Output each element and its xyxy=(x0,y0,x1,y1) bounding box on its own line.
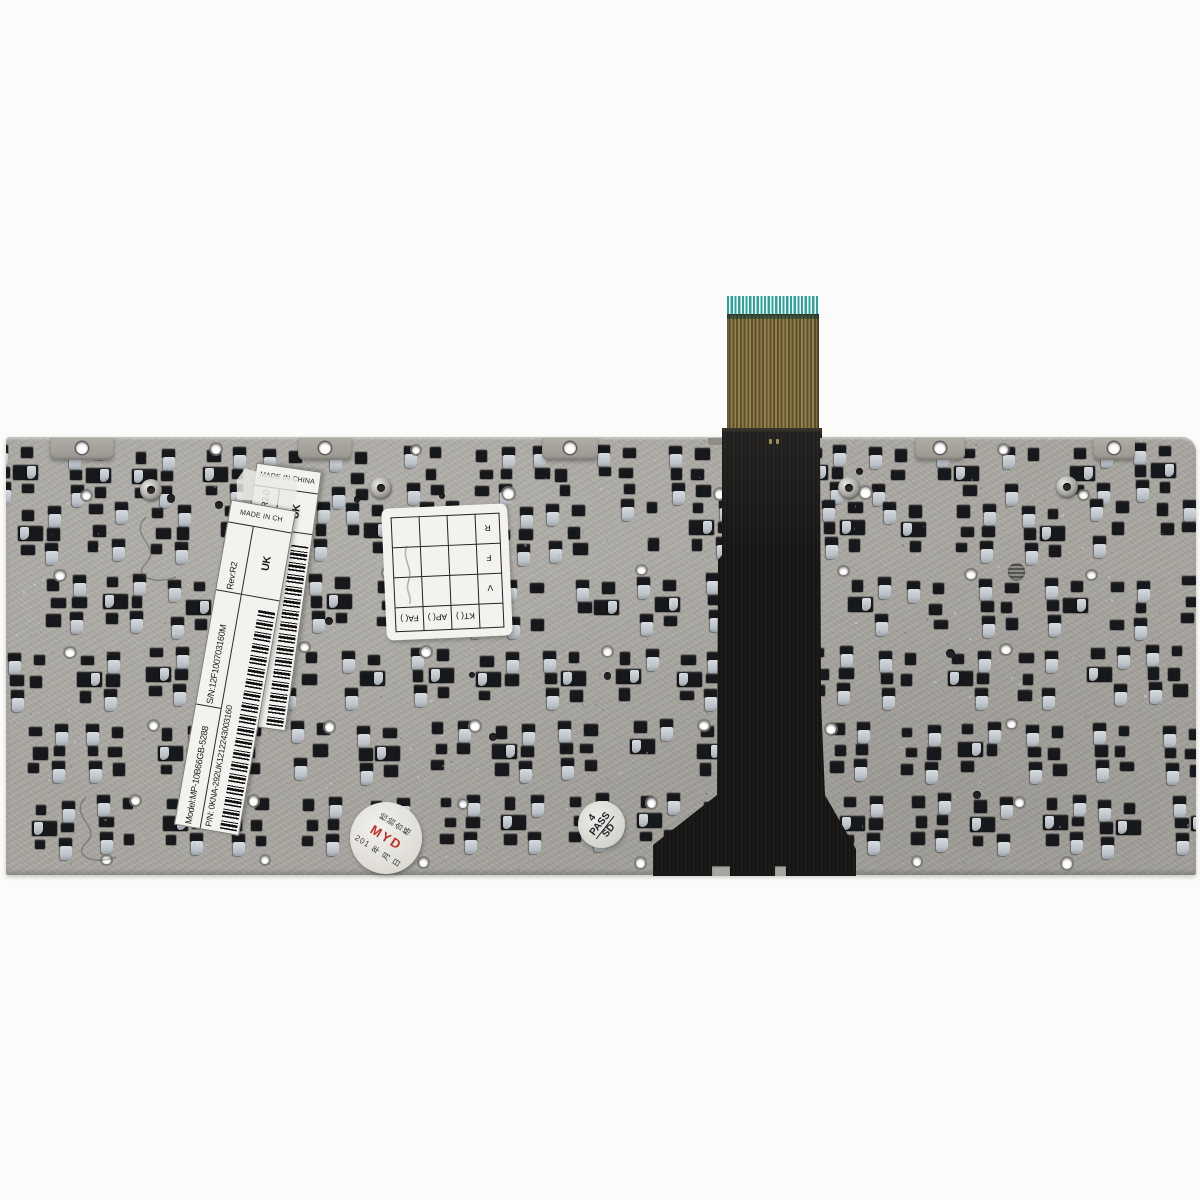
plate-cutout xyxy=(46,614,60,627)
plate-cutout xyxy=(911,832,925,845)
plate-cutout xyxy=(909,505,922,518)
plate-cutout xyxy=(1048,748,1060,761)
metal-speck xyxy=(1139,710,1141,712)
keyhook-clip xyxy=(330,458,342,472)
pin-hole xyxy=(946,649,955,658)
keyhook-clip xyxy=(577,588,589,602)
keyhook-clip xyxy=(108,660,120,674)
plate-cutout xyxy=(457,743,471,754)
plate-cutout xyxy=(1135,465,1146,476)
plate-cutout xyxy=(1175,818,1188,828)
plate-cutout xyxy=(974,800,987,812)
keyhook-clip xyxy=(1115,692,1127,706)
plate-cutout xyxy=(573,543,588,555)
plate-cutout xyxy=(61,823,74,833)
metal-speck xyxy=(508,715,509,717)
keyhook-clip xyxy=(295,766,307,780)
keyhook-clip xyxy=(1138,589,1150,603)
metal-speck xyxy=(969,638,971,640)
qc-cell xyxy=(419,515,448,546)
metal-speck xyxy=(1069,552,1071,553)
plate-cutout xyxy=(156,528,170,539)
through-hole xyxy=(249,796,259,806)
metal-speck xyxy=(1126,466,1127,467)
keyhook-clip xyxy=(313,619,325,633)
plate-cutout xyxy=(1047,600,1059,611)
plate-cutout xyxy=(830,761,845,773)
plate-cutout xyxy=(162,728,172,740)
qc-cell xyxy=(391,516,420,547)
through-hole xyxy=(300,643,308,651)
plate-cutout xyxy=(501,469,512,480)
metal-speck xyxy=(887,522,889,524)
metal-speck xyxy=(486,847,488,849)
plate-cutout xyxy=(895,449,907,461)
metal-speck xyxy=(1011,677,1013,678)
plate-cutout xyxy=(426,469,436,480)
metal-speck xyxy=(878,631,879,633)
metal-speck xyxy=(854,528,855,530)
metal-speck xyxy=(400,737,402,739)
ffc-connector-fingers xyxy=(727,296,819,316)
keyhook-clip xyxy=(929,733,941,747)
plate-cutout xyxy=(648,538,659,551)
metal-speck xyxy=(529,675,531,677)
metal-speck xyxy=(30,635,32,637)
keyhook-clip xyxy=(233,842,245,856)
keyhook-clip xyxy=(1164,734,1176,748)
metal-speck xyxy=(975,486,977,488)
metal-speck xyxy=(445,856,447,858)
plate-cutout xyxy=(476,450,487,462)
through-hole xyxy=(1079,491,1088,500)
metal-speck xyxy=(983,740,985,742)
screw-boss xyxy=(1056,476,1078,498)
metal-speck xyxy=(142,738,144,740)
metal-speck xyxy=(23,591,25,594)
metal-speck xyxy=(450,800,452,802)
metal-speck xyxy=(996,688,998,690)
qc-cell xyxy=(420,545,449,576)
metal-speck xyxy=(369,587,371,589)
plate-cutout xyxy=(335,577,350,590)
through-hole xyxy=(1015,798,1024,807)
keyhook-clip xyxy=(459,729,471,743)
plate-cutout xyxy=(912,796,925,808)
plate-cutout xyxy=(161,765,172,775)
keyhook-clip xyxy=(529,840,541,854)
qc-cell xyxy=(393,576,422,607)
plate-cutout xyxy=(175,669,188,680)
metal-speck xyxy=(57,579,58,581)
keyhook-clip xyxy=(1094,544,1106,558)
plate-cutout xyxy=(1182,576,1196,585)
metal-speck xyxy=(588,638,589,640)
plate-cutout xyxy=(693,503,703,513)
metal-speck xyxy=(474,684,475,686)
plate-cutout xyxy=(35,840,46,849)
metal-speck xyxy=(356,565,357,566)
keyhook-clip xyxy=(641,622,653,636)
metal-speck xyxy=(997,566,999,568)
keyhook-clip xyxy=(1094,731,1106,745)
qc-cell xyxy=(449,574,478,605)
metal-speck xyxy=(904,632,906,634)
slot-clip xyxy=(1045,816,1054,829)
keyhook-clip xyxy=(330,805,342,819)
metal-speck xyxy=(48,723,49,725)
plate-cutout xyxy=(560,485,570,496)
metal-speck xyxy=(1193,822,1195,823)
keyhook-clip xyxy=(547,696,559,710)
metal-speck xyxy=(34,584,35,586)
plate-cutout xyxy=(336,613,348,623)
tab-screw-hole xyxy=(564,442,576,454)
keyhook-clip xyxy=(131,619,143,633)
plate-cutout xyxy=(351,473,364,484)
ribbon-contact-dot xyxy=(776,439,779,444)
plate-cutout xyxy=(623,448,635,457)
metal-speck xyxy=(908,665,909,667)
plate-cutout xyxy=(835,745,846,756)
keyhook-clip xyxy=(63,809,75,823)
keyhook-clip xyxy=(1030,770,1042,784)
plate-cutout xyxy=(901,674,912,685)
plate-cutout xyxy=(30,676,42,688)
plate-cutout xyxy=(47,528,60,540)
metal-speck xyxy=(430,700,433,701)
plate-cutout xyxy=(700,763,711,776)
metal-speck xyxy=(533,862,536,864)
through-hole xyxy=(699,721,709,731)
keyhook-clip xyxy=(981,549,993,563)
metal-speck xyxy=(31,713,32,715)
keyhook-clip xyxy=(884,510,896,524)
metal-speck xyxy=(214,486,216,488)
screw-boss xyxy=(140,479,162,501)
tab-screw-hole xyxy=(319,442,331,454)
metal-speck xyxy=(276,739,278,740)
plate-cutout xyxy=(316,524,326,536)
plate-cutout xyxy=(1159,446,1171,456)
through-hole xyxy=(913,857,921,865)
metal-speck xyxy=(452,725,454,726)
plate-cutout xyxy=(161,471,173,481)
metal-speck xyxy=(388,505,389,506)
plate-cutout xyxy=(929,604,942,615)
keyhook-clip xyxy=(1046,586,1058,600)
metal-speck xyxy=(388,739,390,741)
metal-speck xyxy=(882,475,884,476)
plate-cutout xyxy=(961,527,974,537)
metal-speck xyxy=(1189,825,1190,827)
ribbon-contact-dot xyxy=(769,439,772,444)
metal-speck xyxy=(118,761,120,762)
keyhook-clip xyxy=(1102,845,1114,859)
metal-speck xyxy=(849,443,851,444)
metal-speck xyxy=(86,488,88,490)
plate-cutout xyxy=(89,504,103,514)
plate-cutout xyxy=(1091,648,1105,659)
metal-speck xyxy=(159,456,160,457)
plate-cutout xyxy=(1006,618,1019,630)
plate-cutout xyxy=(570,690,583,703)
metal-speck xyxy=(855,505,856,507)
keyhook-clip xyxy=(670,454,682,468)
qc-cell: F xyxy=(476,543,501,574)
metal-speck xyxy=(70,863,72,864)
keyhook-clip xyxy=(1184,508,1196,522)
metal-speck xyxy=(1021,737,1022,738)
metal-speck xyxy=(516,495,518,496)
plate-cutout xyxy=(1116,501,1129,512)
plate-cutout xyxy=(1168,668,1180,681)
metal-speck xyxy=(1005,528,1007,530)
slot-clip xyxy=(903,523,912,536)
plate-cutout xyxy=(355,452,367,464)
plate-cutout xyxy=(1157,503,1168,516)
plate-cutout xyxy=(1046,834,1060,846)
metal-speck xyxy=(450,828,452,829)
myd-stamp-content: 201 年 月 日 MYD 检验合格 xyxy=(352,806,420,871)
metal-speck xyxy=(467,641,468,644)
slotted-screw xyxy=(1008,563,1025,580)
keyhook-clip xyxy=(465,840,477,854)
plate-cutout xyxy=(934,620,948,629)
metal-speck xyxy=(828,796,830,798)
metal-speck xyxy=(416,454,418,455)
metal-speck xyxy=(126,656,127,658)
plate-cutout xyxy=(1120,762,1134,772)
plate-cutout xyxy=(602,582,615,594)
plate-cutout xyxy=(21,447,33,458)
plate-cutout xyxy=(430,447,441,458)
plate-cutout xyxy=(1172,646,1182,655)
metal-speck xyxy=(335,481,337,483)
metal-speck xyxy=(1159,611,1162,613)
metal-speck xyxy=(450,761,452,763)
metal-speck xyxy=(1029,533,1031,536)
plate-cutout xyxy=(432,722,443,734)
plate-cutout xyxy=(1110,620,1124,630)
metal-speck xyxy=(827,649,829,651)
metal-speck xyxy=(173,632,175,634)
metal-speck xyxy=(1037,700,1039,701)
plate-cutout xyxy=(973,836,983,846)
plate-cutout xyxy=(856,744,868,755)
plate-cutout xyxy=(251,820,262,831)
keyhook-clip xyxy=(1023,514,1035,528)
through-hole xyxy=(149,721,158,730)
keyhook-clip xyxy=(169,588,181,602)
plate-cutout xyxy=(1074,448,1087,459)
metal-speck xyxy=(595,704,598,706)
keyhook-clip xyxy=(559,729,571,743)
through-hole xyxy=(102,856,111,865)
keyhook-clip xyxy=(346,696,358,710)
metal-speck xyxy=(164,639,165,641)
slot-clip xyxy=(205,468,214,481)
metal-speck xyxy=(129,576,131,577)
metal-speck xyxy=(1178,664,1179,665)
metal-speck xyxy=(705,793,707,794)
metal-speck xyxy=(471,648,473,650)
tab-screw-hole xyxy=(76,442,88,454)
plate-cutout xyxy=(1160,482,1170,493)
plate-cutout xyxy=(112,727,123,738)
pin-hole xyxy=(856,468,863,475)
slot-clip xyxy=(478,673,487,686)
plate-cutout xyxy=(647,502,657,513)
metal-speck xyxy=(187,584,189,585)
plate-cutout xyxy=(151,544,162,554)
metal-speck xyxy=(48,779,50,781)
ffc-exposed-traces xyxy=(727,314,819,433)
metal-speck xyxy=(330,783,332,785)
metal-speck xyxy=(659,763,661,764)
keyhook-clip xyxy=(1167,771,1179,785)
plate-cutout xyxy=(113,763,125,776)
plate-cutout xyxy=(95,487,106,499)
metal-speck xyxy=(417,776,419,778)
keyhook-clip xyxy=(518,552,530,566)
keyhook-clip xyxy=(1003,455,1015,469)
metal-speck xyxy=(96,598,97,599)
plate-cutout xyxy=(106,674,120,687)
plate-cutout xyxy=(34,655,46,666)
slot-clip xyxy=(134,470,143,483)
metal-speck xyxy=(650,600,652,602)
plate-cutout xyxy=(495,763,509,776)
through-hole xyxy=(503,488,513,498)
metal-speck xyxy=(166,469,167,471)
metal-speck xyxy=(142,838,144,839)
through-hole xyxy=(839,567,847,575)
slot-clip xyxy=(27,466,36,479)
qc-cell xyxy=(447,514,476,545)
keyhook-clip xyxy=(74,583,86,597)
metal-speck xyxy=(953,796,955,798)
metal-speck xyxy=(80,633,82,635)
keyhook-clip xyxy=(113,547,125,561)
plate-cutout xyxy=(136,452,146,463)
metal-speck xyxy=(619,772,621,773)
metal-speck xyxy=(998,748,1000,750)
keyhook-clip xyxy=(1177,841,1189,855)
keyhook-clip xyxy=(105,697,117,711)
metal-speck xyxy=(959,689,961,691)
metal-speck xyxy=(450,497,453,499)
keyhook-clip xyxy=(347,511,359,525)
metal-speck xyxy=(1111,599,1113,601)
metal-speck xyxy=(890,861,892,862)
myd-date-stamp: 201 年 月 日 MYD 检验合格 xyxy=(350,802,422,874)
metal-speck xyxy=(980,487,983,489)
metal-speck xyxy=(333,835,334,836)
through-hole xyxy=(131,796,140,805)
micro-tab xyxy=(708,438,724,445)
plate-cutout xyxy=(384,765,397,777)
metal-speck xyxy=(1189,685,1191,687)
plate-cutout xyxy=(1115,746,1125,757)
plate-cutout xyxy=(51,598,66,608)
metal-speck xyxy=(98,548,100,549)
through-hole xyxy=(1001,645,1011,655)
metal-speck xyxy=(144,652,145,654)
keyhook-clip xyxy=(705,697,717,711)
plate-cutout xyxy=(1119,726,1130,735)
plate-cutout xyxy=(81,656,93,666)
plate-cutout xyxy=(177,527,189,539)
screw-boss xyxy=(838,477,860,499)
plate-cutout xyxy=(956,543,967,553)
qc-grid-rotated: KT( )AP( )FA( )VFR xyxy=(390,512,504,632)
plate-cutout xyxy=(256,836,267,846)
keyhook-clip xyxy=(343,659,355,673)
plate-cutout xyxy=(383,728,397,738)
metal-speck xyxy=(933,713,936,714)
metal-speck xyxy=(42,579,44,581)
plate-cutout xyxy=(555,469,567,482)
plate-cutout xyxy=(1047,798,1057,810)
keyhook-clip xyxy=(870,455,882,469)
through-hole xyxy=(637,566,645,574)
plate-cutout xyxy=(927,747,941,760)
keyhook-clip xyxy=(503,455,515,469)
metal-speck xyxy=(643,851,644,852)
metal-speck xyxy=(975,444,977,446)
metal-speck xyxy=(943,690,945,692)
plate-cutout xyxy=(303,799,314,811)
keyhook-clip xyxy=(1174,804,1186,818)
plate-cutout xyxy=(1052,726,1063,737)
pin-hole xyxy=(489,733,497,741)
keyhook-clip xyxy=(876,622,888,636)
keyhook-clip xyxy=(1049,623,1061,637)
metal-speck xyxy=(1019,683,1021,685)
metal-speck xyxy=(566,808,568,810)
metal-speck xyxy=(368,504,369,505)
metal-speck xyxy=(1044,499,1046,501)
metal-speck xyxy=(855,622,856,624)
metal-speck xyxy=(337,711,338,713)
plate-cutout xyxy=(1019,653,1034,663)
plate-cutout xyxy=(149,686,162,696)
plate-cutout xyxy=(1028,448,1039,461)
metal-speck xyxy=(890,668,892,671)
plate-cutout xyxy=(962,724,973,734)
keyhook-clip xyxy=(90,769,102,783)
keyhook-clip xyxy=(661,727,673,741)
keyhook-clip xyxy=(468,803,480,817)
metal-speck xyxy=(460,833,462,834)
plate-cutout xyxy=(619,468,633,478)
plate-cutout xyxy=(1053,764,1067,777)
keyhook-clip xyxy=(318,510,330,524)
slot-clip xyxy=(1042,527,1051,540)
plate-cutout xyxy=(440,834,454,844)
metal-speck xyxy=(441,439,442,440)
plate-cutout xyxy=(531,619,544,631)
keyhook-clip xyxy=(49,514,61,528)
keyhook-clip xyxy=(6,453,8,467)
metal-speck xyxy=(880,481,882,482)
mounting-tab xyxy=(915,438,965,460)
keyhook-clip xyxy=(412,656,424,670)
metal-speck xyxy=(913,721,916,722)
keyhook-clip xyxy=(838,691,850,705)
plate-cutout xyxy=(33,747,48,760)
